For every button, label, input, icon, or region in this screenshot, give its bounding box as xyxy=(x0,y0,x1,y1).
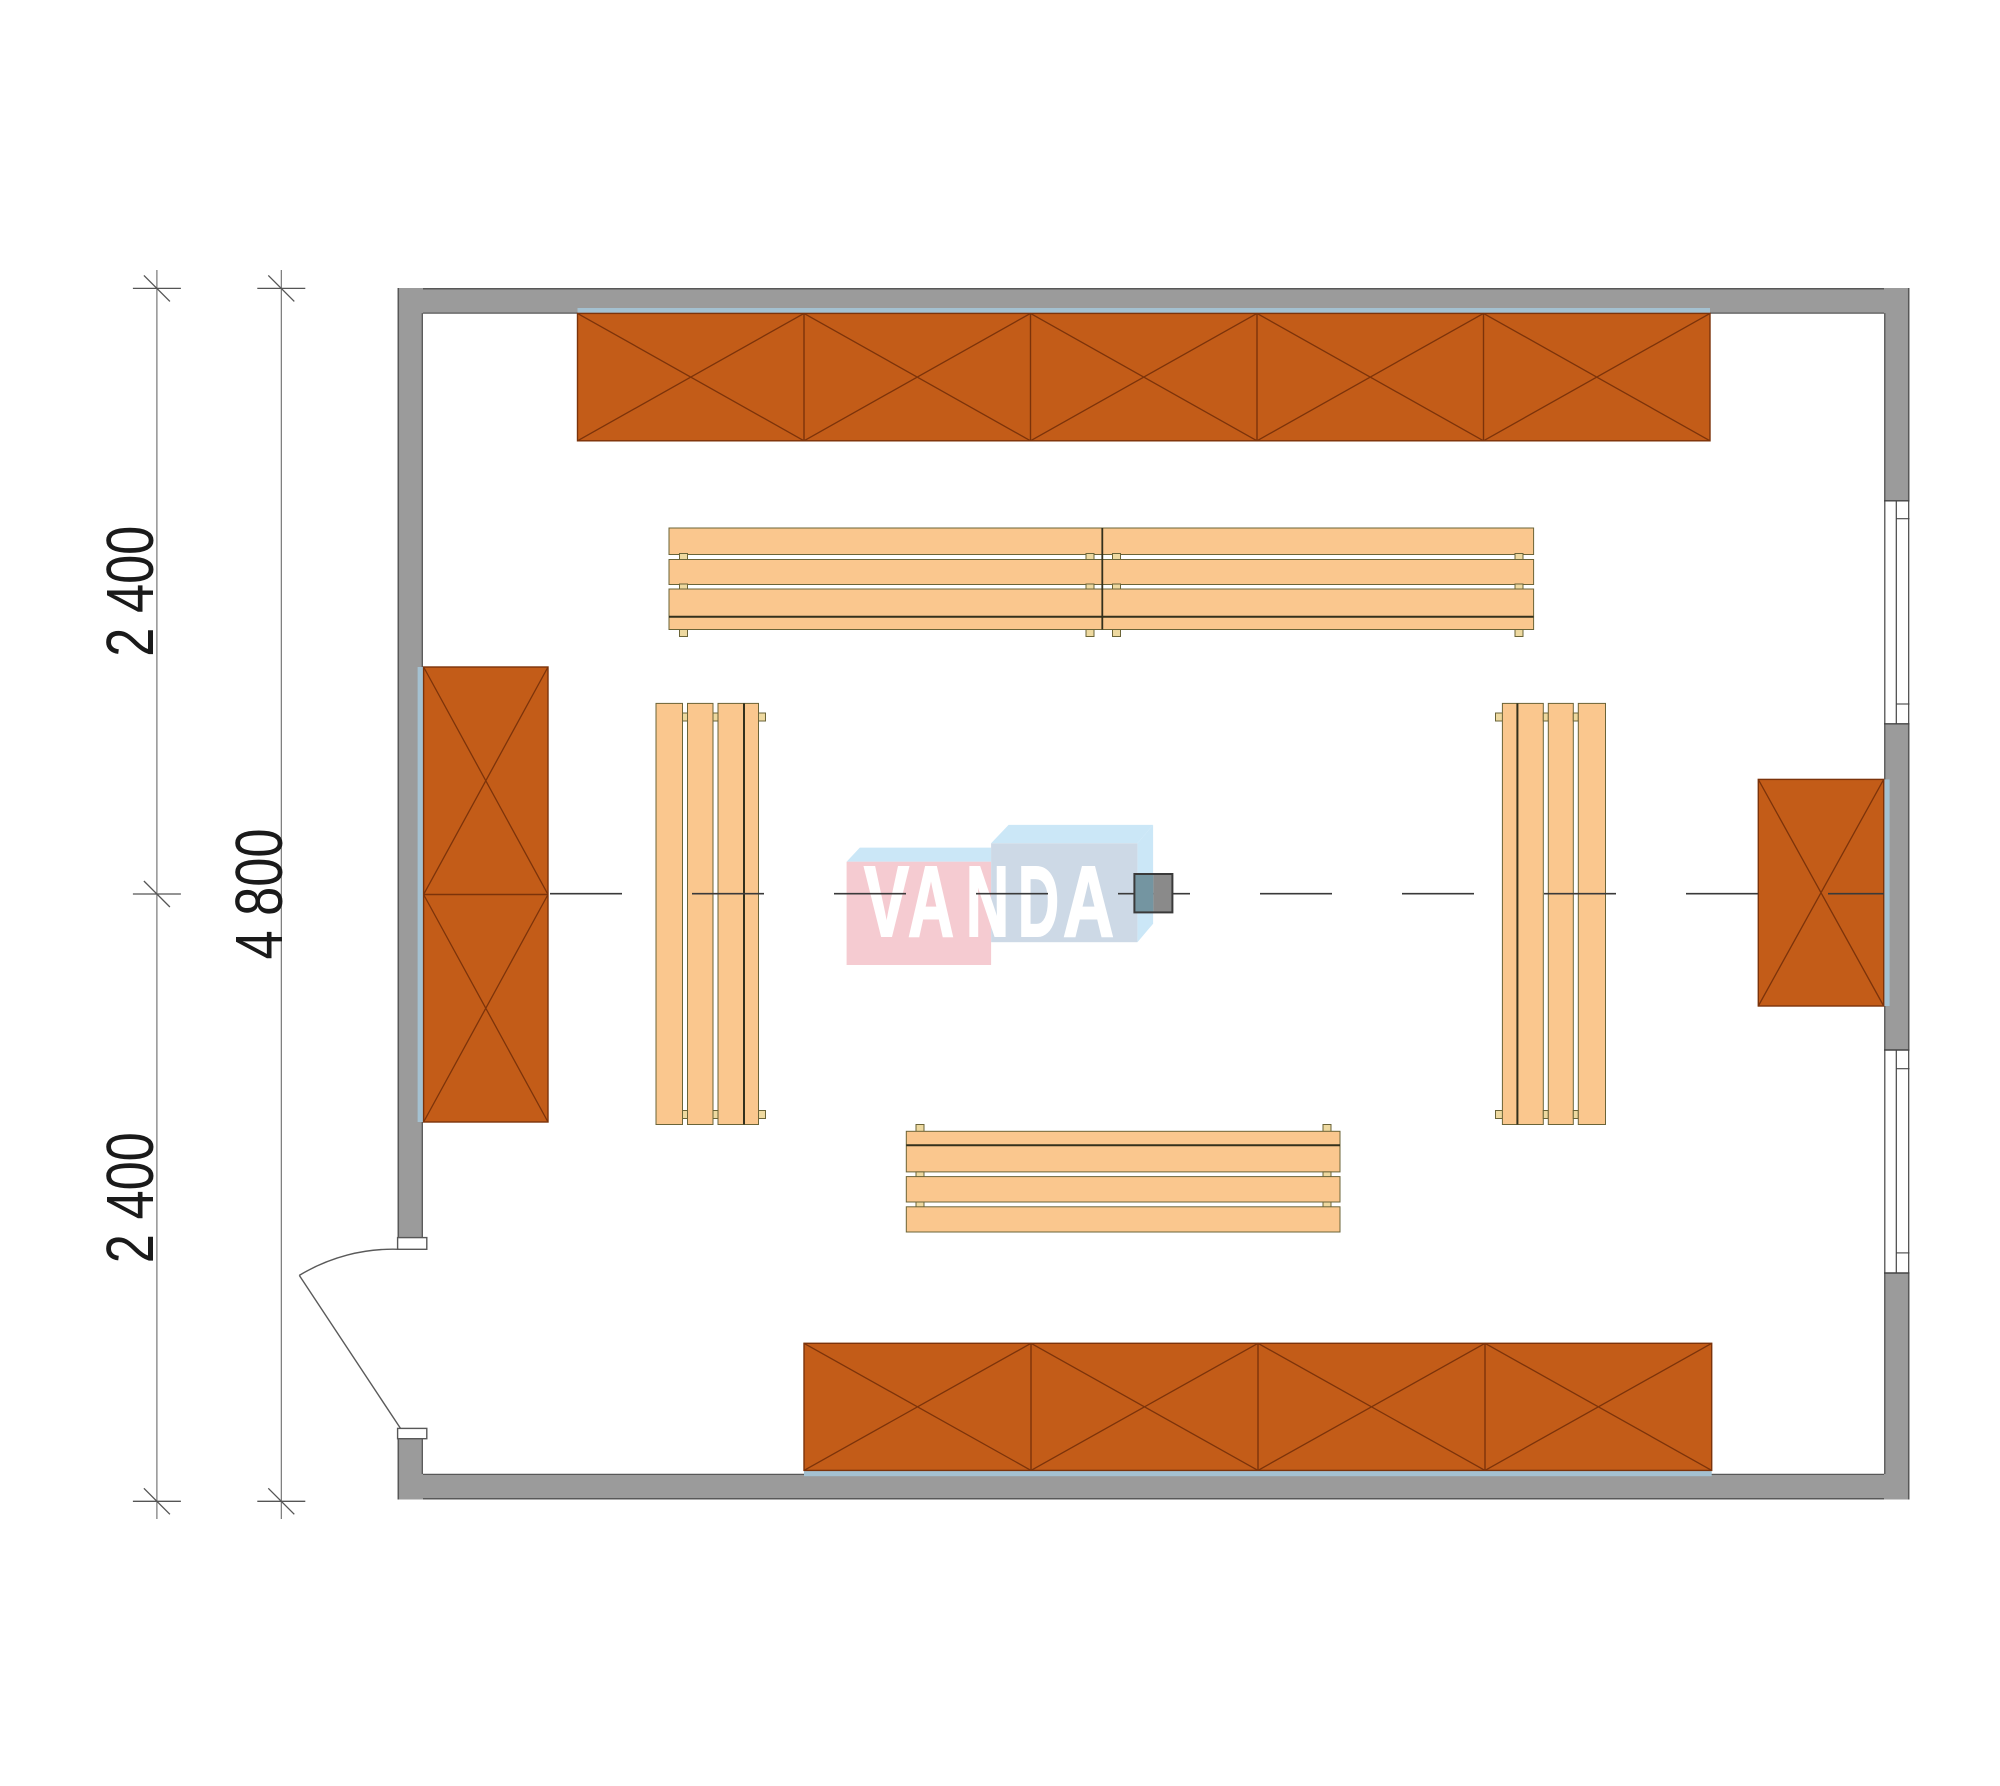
svg-text:V: V xyxy=(864,846,909,958)
svg-text:N: N xyxy=(966,846,1009,958)
svg-text:2 400: 2 400 xyxy=(93,526,168,657)
svg-text:A: A xyxy=(1063,846,1114,958)
svg-text:D: D xyxy=(1018,846,1059,958)
svg-text:4 800: 4 800 xyxy=(222,829,297,960)
svg-text:2 400: 2 400 xyxy=(93,1132,168,1263)
svg-text:A: A xyxy=(908,846,954,958)
